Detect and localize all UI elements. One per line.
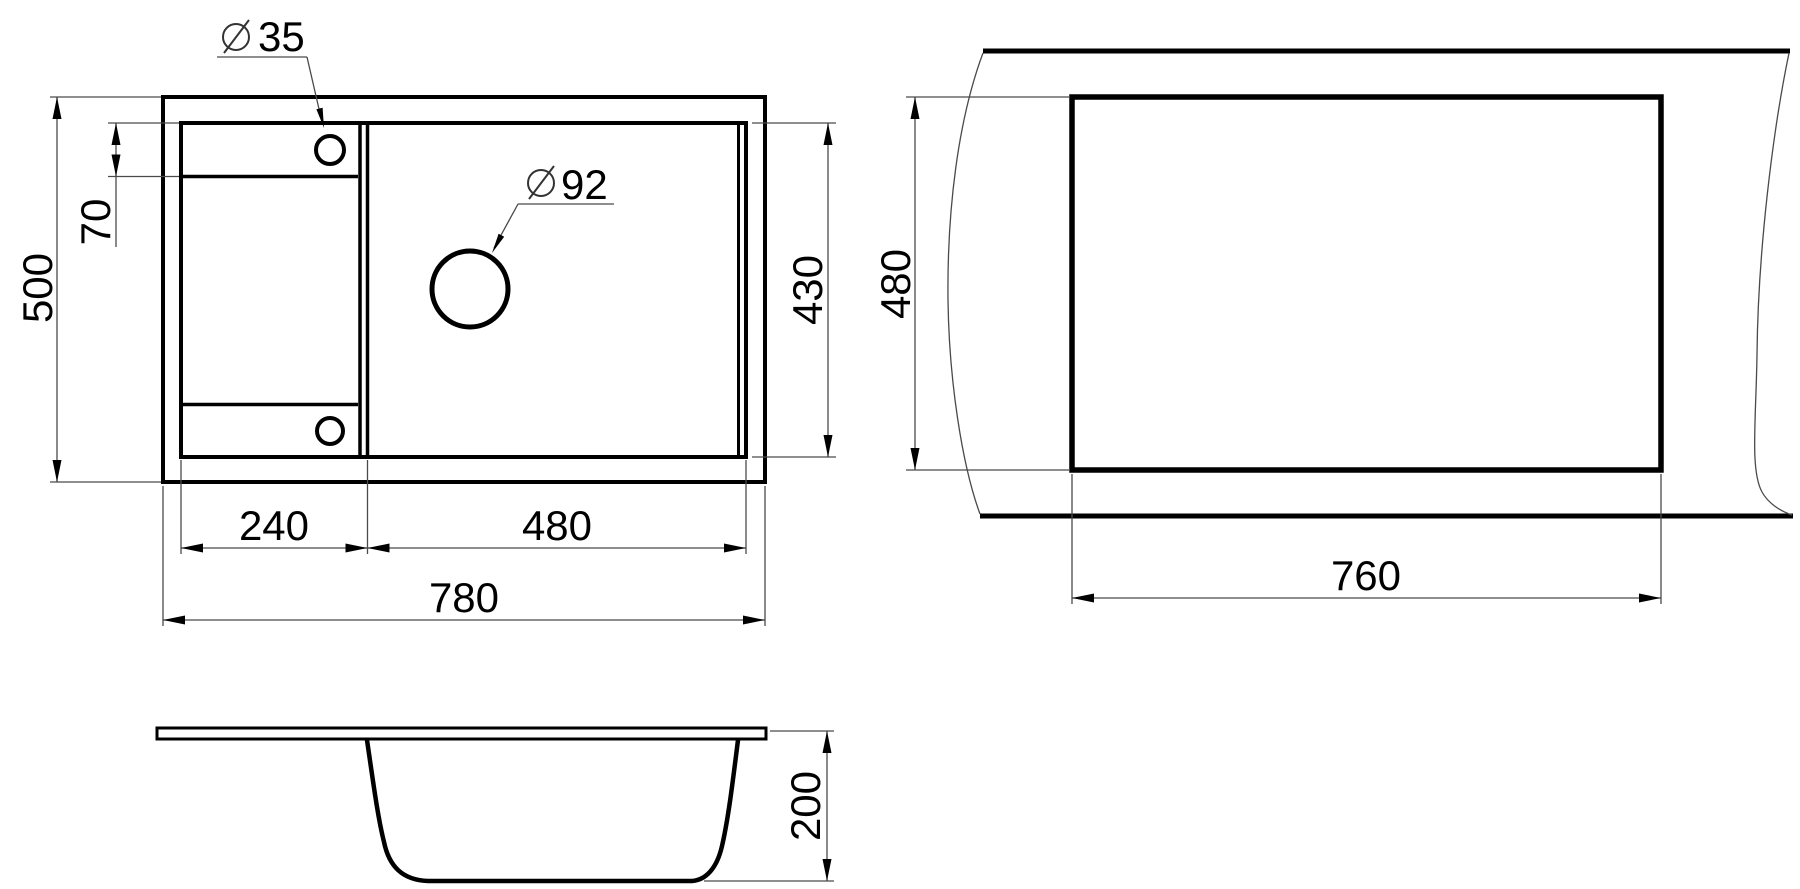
dim-cutout-length-760: 760: [1072, 474, 1661, 604]
dim-text: 240: [239, 502, 309, 549]
dim-arrow-left: [368, 544, 390, 553]
dim-arrow-up: [823, 731, 832, 753]
dim-arrow-left: [163, 616, 185, 625]
dim-bowl-depth-200: 200: [704, 731, 834, 881]
dim-text: 500: [14, 253, 61, 323]
dim-arrow-right: [1639, 594, 1661, 603]
dim-arrow-right: [724, 544, 746, 553]
section-view: 200: [157, 728, 834, 881]
dim-text: 70: [72, 199, 119, 246]
dim-arrow-down: [911, 448, 920, 470]
dim-arrow-right: [743, 616, 765, 625]
tap-hole-diameter-value: 35: [258, 13, 305, 60]
sink-outer-outline: [163, 97, 765, 482]
drain-hole-diameter-label: 92: [492, 161, 614, 253]
cutout-outline: [1072, 97, 1661, 470]
dim-arrow-down: [112, 155, 121, 177]
top-view: 35 92 500: [14, 13, 836, 626]
dim-arrow-down: [53, 460, 62, 482]
dim-text: 200: [782, 771, 829, 841]
dim-text: 480: [872, 249, 919, 319]
drawing-canvas: 35 92 500: [0, 0, 1800, 889]
dim-drainer-section-240: 240: [181, 460, 368, 554]
dim-arrow-left: [181, 544, 203, 553]
dim-cutout-width-480: 480: [872, 97, 1070, 470]
sink-inner-rim-outline: [181, 123, 746, 457]
tap-hole-top: [316, 136, 344, 164]
dim-arrow-up: [112, 123, 121, 145]
leader-arrow: [492, 234, 504, 253]
sink-technical-drawing: 35 92 500: [0, 0, 1800, 889]
dim-text: 430: [784, 255, 831, 325]
bowl-profile: [367, 740, 738, 881]
dim-arrow-left: [1072, 594, 1094, 603]
dim-arrow-right: [346, 544, 368, 553]
dim-arrow-up: [824, 123, 833, 145]
dim-text: 480: [522, 502, 592, 549]
dim-arrow-down: [823, 859, 832, 881]
dim-text: 780: [429, 574, 499, 621]
break-line-right: [1755, 53, 1792, 515]
break-line-left: [948, 53, 983, 514]
dim-arrow-up: [53, 97, 62, 119]
dim-text: 760: [1331, 552, 1401, 599]
rim-profile: [157, 728, 766, 739]
dim-arrow-up: [911, 97, 920, 119]
cutout-view: 480 760: [872, 51, 1793, 604]
drain-hole: [432, 251, 508, 327]
dim-overall-width-500: 500: [14, 97, 161, 482]
tap-hole-bottom: [317, 418, 343, 444]
tap-hole-diameter-label: 35: [217, 13, 324, 128]
drain-hole-diameter-value: 92: [561, 161, 608, 208]
dim-arrow-down: [824, 435, 833, 457]
dim-bowl-section-480: 480: [368, 460, 747, 554]
